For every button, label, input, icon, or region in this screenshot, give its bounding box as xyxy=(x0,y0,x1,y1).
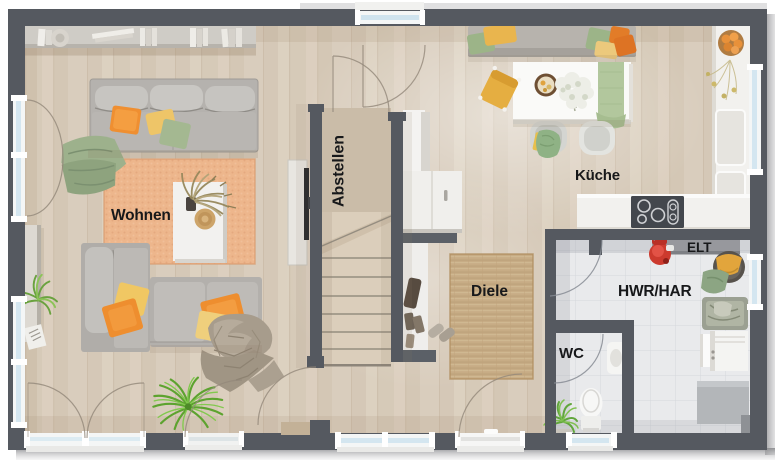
svg-text:Küche: Küche xyxy=(575,167,620,184)
svg-text:WC: WC xyxy=(559,345,584,362)
svg-text:Wohnen: Wohnen xyxy=(111,207,171,224)
svg-text:ELT: ELT xyxy=(687,240,712,255)
svg-text:HWR/HAR: HWR/HAR xyxy=(618,283,692,300)
svg-text:Diele: Diele xyxy=(471,283,508,300)
svg-text:Abstellen: Abstellen xyxy=(331,135,348,207)
